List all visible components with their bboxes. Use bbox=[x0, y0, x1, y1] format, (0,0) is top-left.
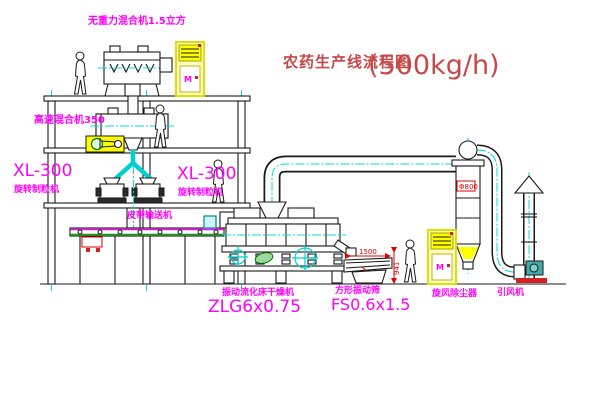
cabinet-top-marking: M bbox=[184, 75, 192, 84]
label-granulator-left-name: 旋转制粒机 bbox=[13, 183, 59, 195]
label-granulator-right-name: 旋转制粒机 bbox=[177, 186, 223, 198]
label-dryer-model: ZLG6x0.75 bbox=[208, 297, 301, 317]
floor3-slab bbox=[44, 203, 250, 208]
mixer-motor-icon bbox=[160, 58, 172, 72]
fan-base bbox=[516, 278, 547, 283]
conveyor-drive-icon bbox=[204, 216, 216, 228]
diagram-canvas: Φ800 M bbox=[0, 0, 600, 403]
exhaust-duct bbox=[272, 164, 456, 206]
screen-height-dim: 941 bbox=[393, 262, 401, 275]
label-cyclone: 旋风除尘器 bbox=[431, 287, 478, 299]
control-cabinet-top: M bbox=[176, 42, 204, 96]
duct-hopper bbox=[258, 202, 286, 218]
cyclone-outlet-elbow-icon bbox=[459, 141, 477, 159]
label-screen-model: FS0.6x1.5 bbox=[331, 295, 410, 314]
floor2-slab bbox=[44, 148, 250, 153]
roof-slab bbox=[44, 96, 250, 101]
cabinet-right-marking: M bbox=[436, 263, 444, 272]
drive-motor-icon bbox=[92, 139, 103, 150]
person-floor2 bbox=[155, 105, 167, 147]
fan-motor-icon bbox=[530, 264, 538, 272]
screen-length-dim: 1500 bbox=[359, 248, 377, 256]
granulator-right bbox=[132, 178, 164, 203]
rain-cap-icon bbox=[515, 176, 543, 193]
vibrating-screen: 1500 941 bbox=[334, 240, 401, 283]
page-title-capacity: (500kg/h) bbox=[368, 50, 500, 81]
person-roof bbox=[75, 52, 87, 94]
label-granulator-right-model: XL-300 bbox=[177, 164, 236, 184]
label-granulator-left-model: XL-300 bbox=[13, 161, 72, 181]
label-fan: 引风机 bbox=[497, 286, 524, 298]
induced-draft-fan bbox=[514, 261, 547, 283]
process-flow-diagram: Φ800 M bbox=[0, 0, 600, 403]
granulator-left bbox=[96, 178, 128, 203]
gravity-free-mixer bbox=[98, 46, 172, 114]
control-cabinet-right: M bbox=[428, 230, 456, 284]
cyclone-outlet-pipe bbox=[477, 150, 521, 272]
label-gravity-mixer: 无重力混合机1.5立方 bbox=[87, 14, 186, 27]
person-ground bbox=[405, 240, 417, 282]
cyclone-diameter-dim: Φ800 bbox=[459, 183, 478, 191]
label-high-speed-mixer: 高速混合机350 bbox=[34, 113, 105, 126]
label-belt-conveyor: 皮带输送机 bbox=[126, 209, 172, 221]
fluid-bed-dryer bbox=[220, 202, 346, 283]
